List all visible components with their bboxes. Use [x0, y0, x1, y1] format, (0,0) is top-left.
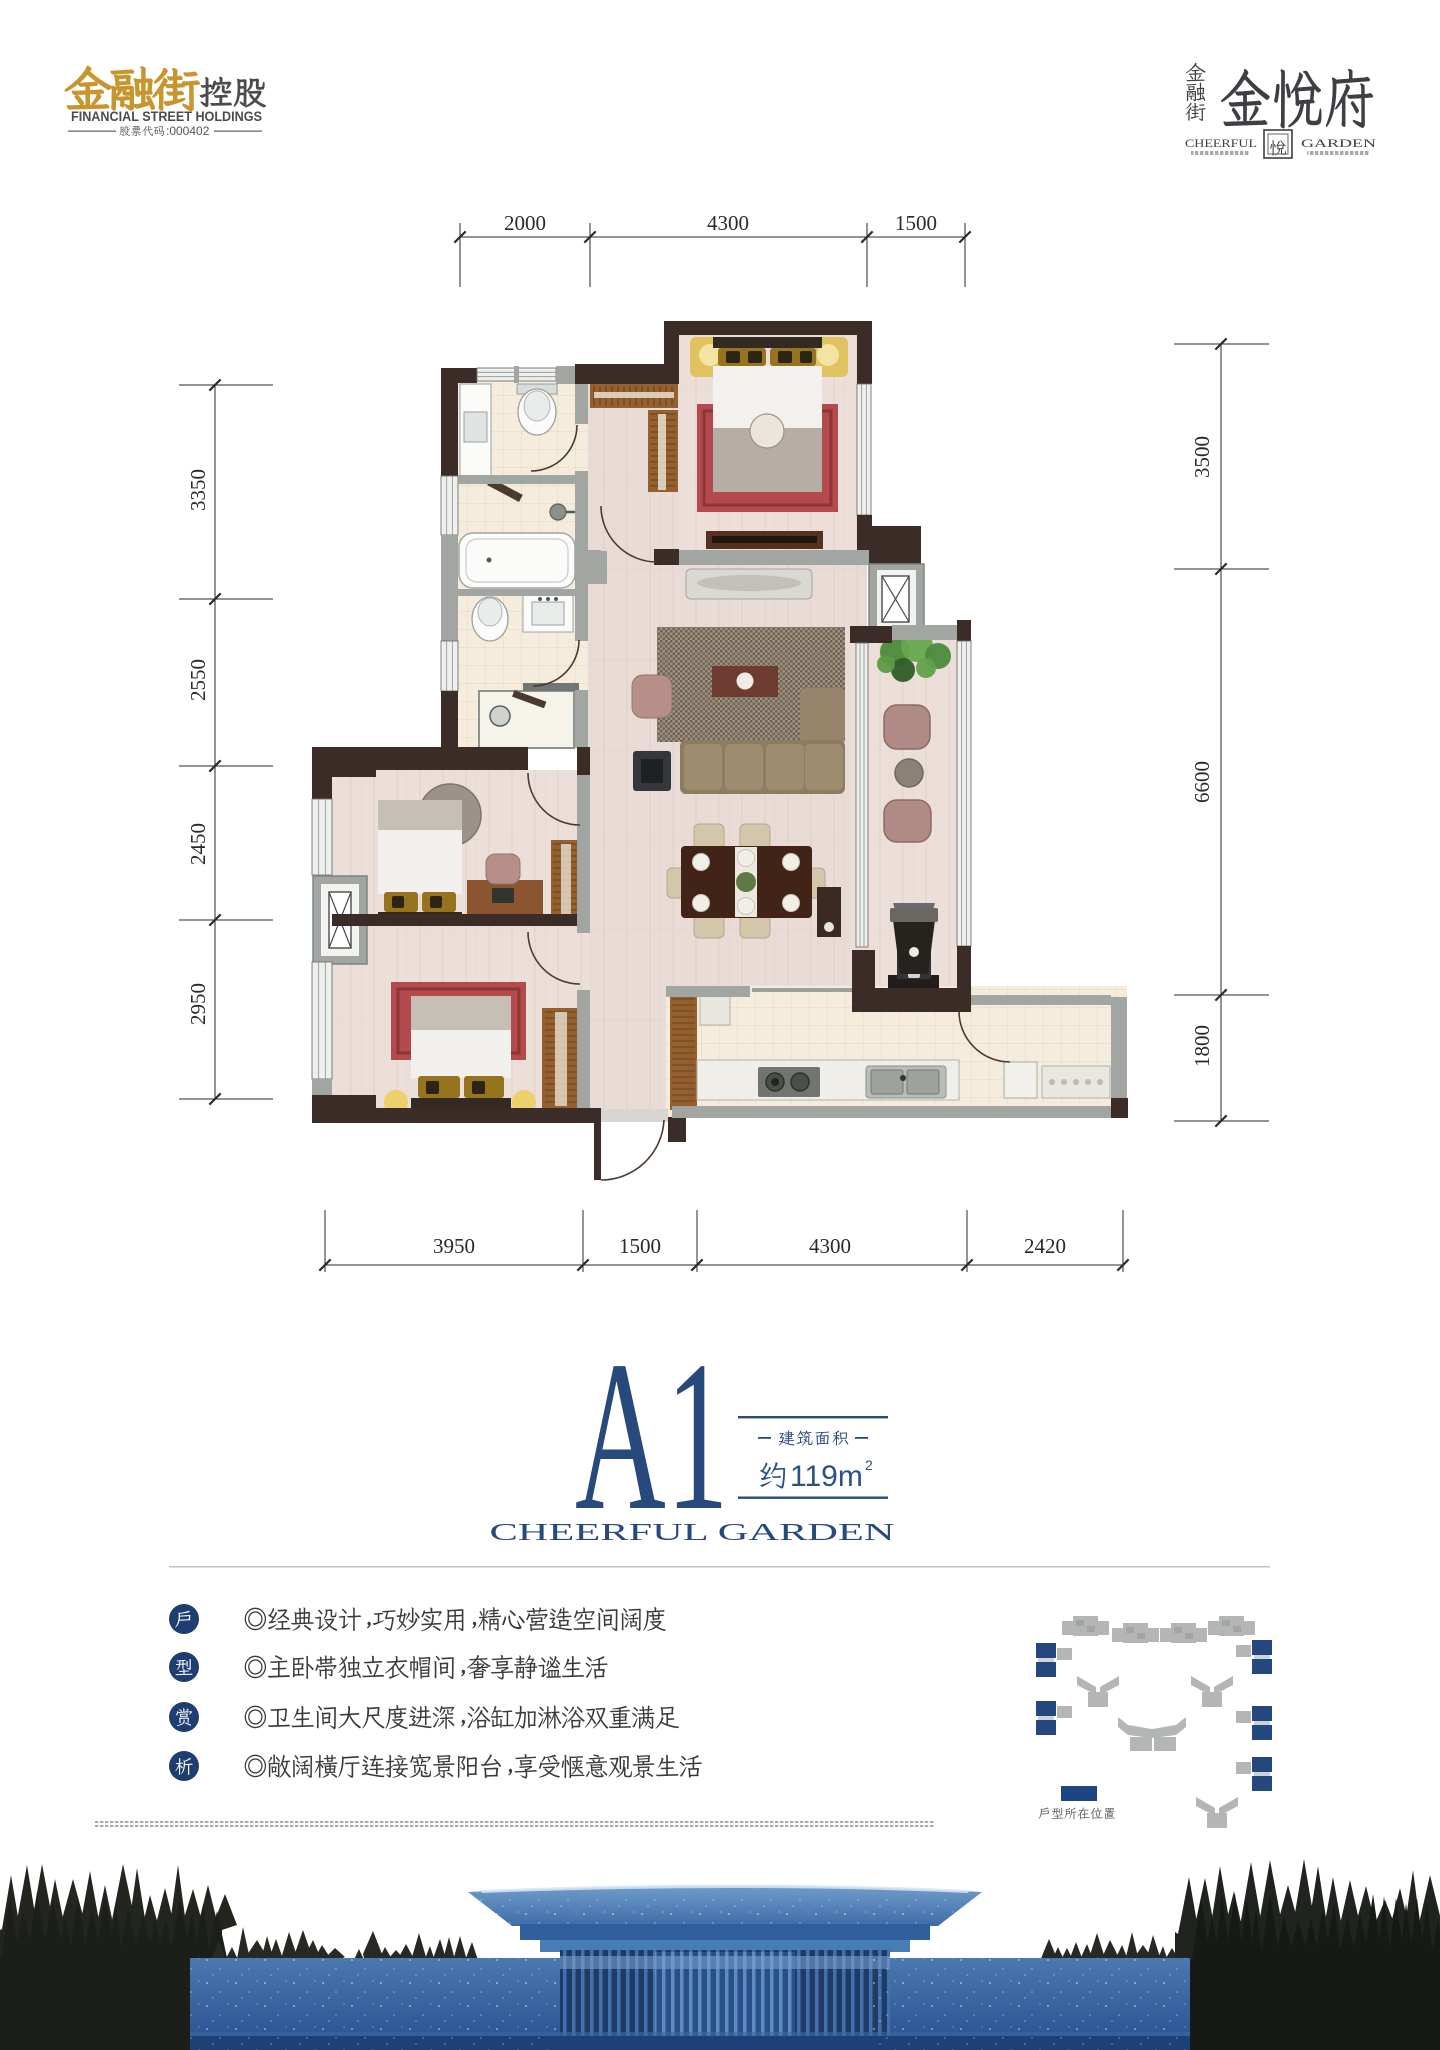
- svg-text:1800: 1800: [1190, 1025, 1214, 1067]
- svg-text:3350: 3350: [186, 469, 210, 511]
- svg-text:3950: 3950: [433, 1234, 475, 1258]
- svg-text:2950: 2950: [186, 983, 210, 1025]
- svg-text:2450: 2450: [186, 823, 210, 865]
- svg-text:1500: 1500: [895, 211, 937, 235]
- svg-text:4300: 4300: [707, 211, 749, 235]
- svg-text:3500: 3500: [1190, 436, 1214, 478]
- svg-text:4300: 4300: [809, 1234, 851, 1258]
- svg-text:1500: 1500: [619, 1234, 661, 1258]
- svg-text:2420: 2420: [1024, 1234, 1066, 1258]
- svg-text:119m: 119m: [790, 1460, 863, 1493]
- svg-text:6600: 6600: [1190, 761, 1214, 803]
- svg-text:FINANCIAL STREET HOLDINGS: FINANCIAL STREET HOLDINGS: [71, 109, 262, 124]
- svg-text:CHEERFUL: CHEERFUL: [1185, 138, 1257, 150]
- svg-text:CHEERFUL GARDEN: CHEERFUL GARDEN: [490, 1520, 895, 1546]
- svg-text:2000: 2000: [504, 211, 546, 235]
- svg-text::000402: :000402: [166, 124, 210, 138]
- svg-text:2550: 2550: [186, 659, 210, 701]
- svg-text:2: 2: [865, 1457, 873, 1473]
- svg-text:GARDEN: GARDEN: [1301, 138, 1377, 150]
